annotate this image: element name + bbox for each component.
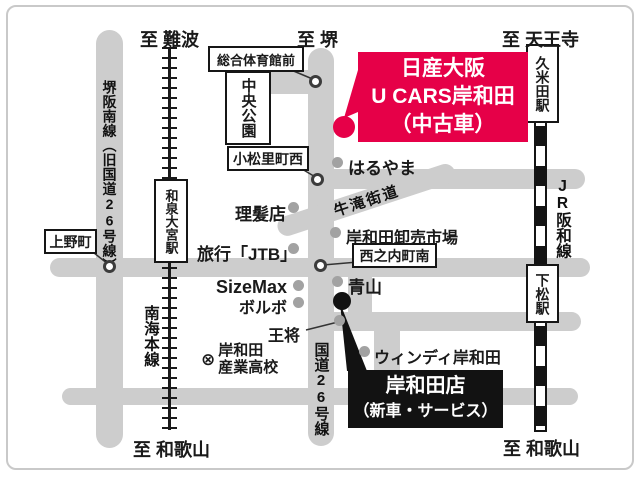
school-symbol-icon: ⊗ bbox=[201, 351, 215, 376]
volvo-dot bbox=[293, 297, 304, 308]
osho-dot bbox=[334, 315, 345, 326]
label-sogo-taiikukan-mae: 総合体育館前 bbox=[208, 46, 304, 72]
used-car-store-callout: 日産大阪 U CARS岸和田 （中古車） bbox=[358, 52, 528, 142]
station-izumi-omiya-label: 和泉大宮駅 bbox=[162, 189, 181, 254]
intersection-circle-gym bbox=[309, 75, 322, 88]
new-car-store-callout: 岸和田店 （新車・サービス） bbox=[348, 370, 503, 428]
aoyama-label: 青山 bbox=[348, 273, 382, 298]
wholesale-market-dot bbox=[330, 227, 341, 238]
label-ueno-cho: 上野町 bbox=[44, 229, 97, 254]
volvo-label: ボルボ bbox=[237, 294, 287, 318]
station-kumeda-label: 久米田駅 bbox=[533, 56, 553, 112]
haruyama-dot bbox=[332, 157, 343, 168]
label-chuo-koen-text: 中央公園 bbox=[238, 78, 259, 138]
station-shimomatsu: 下松駅 bbox=[526, 264, 559, 323]
label-ueno-cho-text: 上野町 bbox=[50, 232, 92, 252]
sangyo-high-school-line1: 岸和田 bbox=[218, 342, 278, 359]
intersection-circle-uenocho bbox=[103, 260, 116, 273]
label-komatsuri-cho-nishi: 小松里町西 bbox=[227, 146, 309, 171]
sakai-hannan-label: 堺阪南線（旧国道26号線） bbox=[93, 70, 126, 282]
barber-dot bbox=[288, 202, 299, 213]
intersection-circle-komatsuri bbox=[311, 173, 324, 186]
label-komatsuri-cho-nishi-text: 小松里町西 bbox=[233, 149, 303, 169]
sangyo-high-school: ⊗ 岸和田 産業高校 bbox=[201, 342, 278, 376]
label-sogo-taiikukan-mae-text: 総合体育館前 bbox=[217, 50, 295, 69]
label-chuo-koen: 中央公園 bbox=[225, 71, 271, 145]
dealer-access-map: 牛滝街道 堺阪南線（旧国道26号線） 国道26号線 南海本線 JR阪和線 bbox=[0, 0, 640, 480]
new-car-line2: （新車・サービス） bbox=[353, 399, 497, 425]
direction-wakayama-left: 至 和歌山 bbox=[133, 436, 210, 462]
sakai-hannan-label-text: 堺阪南線（旧国道26号線） bbox=[100, 80, 120, 273]
jr-hanwa-label-text: JR阪和線 bbox=[551, 178, 573, 259]
nankai-line-label: 南海本線 bbox=[137, 295, 163, 377]
aoyama-dot bbox=[332, 276, 343, 287]
label-nishinouchi-cho-minami-text: 西之内町南 bbox=[360, 246, 430, 266]
used-car-line1: 日産大阪 bbox=[401, 55, 485, 83]
used-car-line2: U CARS岸和田 bbox=[371, 83, 515, 111]
jr-hanwa-label: JR阪和線 bbox=[549, 172, 575, 264]
jtb-label: 旅行「JTB」 bbox=[197, 240, 285, 265]
nankai-line-label-text: 南海本線 bbox=[139, 305, 161, 367]
windy-dot bbox=[359, 346, 370, 357]
used-car-store-dot bbox=[333, 116, 355, 138]
route26-label-text: 国道26号線 bbox=[311, 342, 332, 436]
haruyama-label: はるやま bbox=[348, 154, 416, 179]
new-car-line1: 岸和田店 bbox=[386, 373, 466, 399]
wholesale-market-label: 岸和田卸売市場 bbox=[346, 224, 458, 248]
used-car-line3: （中古車） bbox=[391, 111, 496, 139]
direction-namba: 至 難波 bbox=[140, 26, 199, 52]
route26-label: 国道26号線 bbox=[305, 338, 337, 440]
windy-kishiwada-label: ウィンディ岸和田 bbox=[374, 344, 501, 368]
station-kumeda: 久米田駅 bbox=[526, 44, 559, 123]
barber-label: 理髪店 bbox=[235, 200, 285, 225]
sangyo-high-school-line2: 産業高校 bbox=[218, 359, 278, 376]
station-shimomatsu-label: 下松駅 bbox=[533, 273, 553, 315]
sizemax-dot bbox=[293, 280, 304, 291]
direction-tennoji: 至 天王寺 bbox=[502, 26, 579, 52]
station-izumi-omiya: 和泉大宮駅 bbox=[154, 179, 188, 263]
direction-sakai: 至 堺 bbox=[297, 26, 338, 52]
intersection-circle-nishinouchi bbox=[314, 259, 327, 272]
direction-wakayama-right: 至 和歌山 bbox=[503, 435, 580, 461]
